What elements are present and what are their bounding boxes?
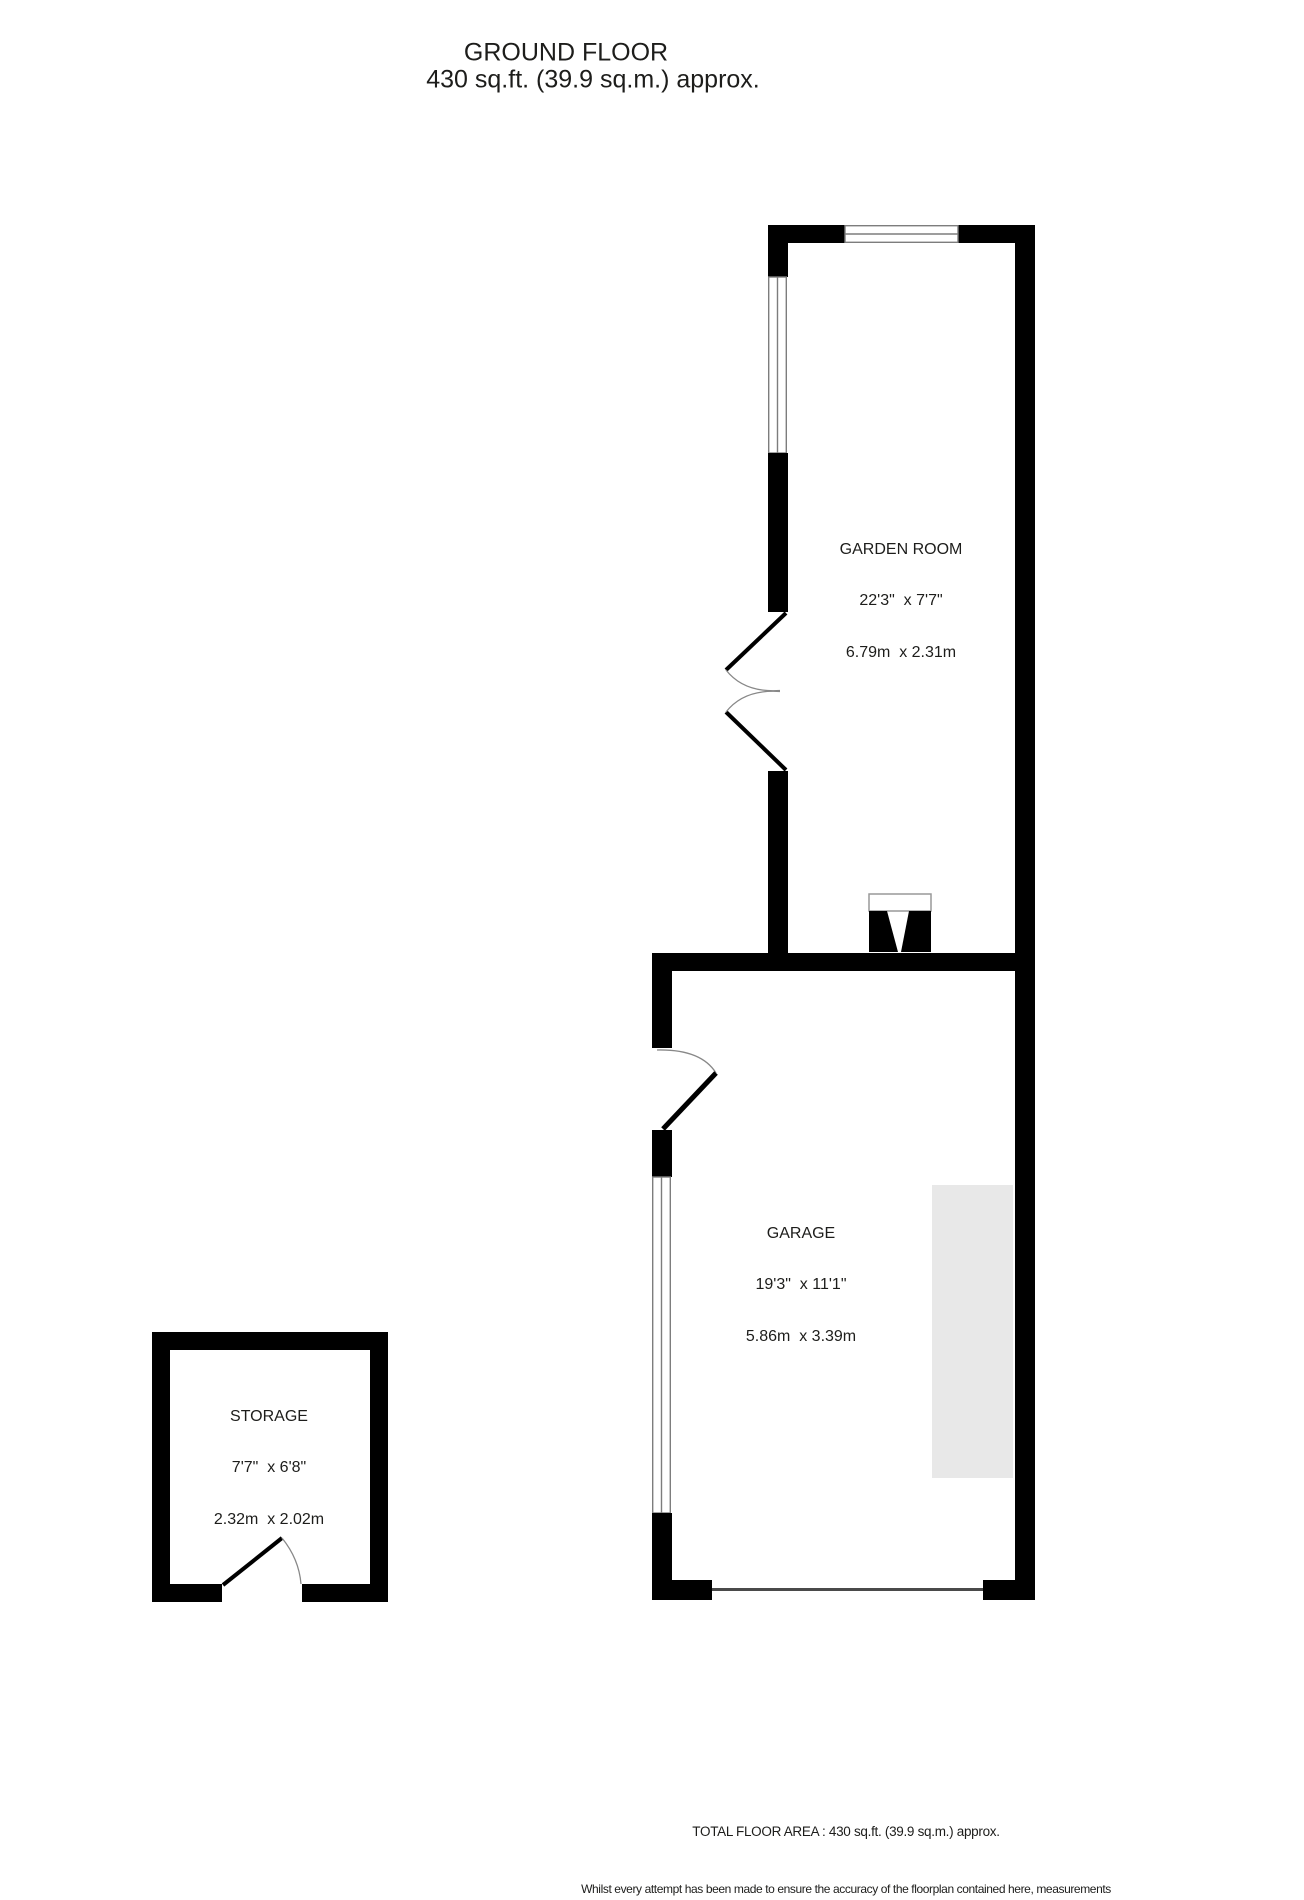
bifold-door-frame xyxy=(869,894,931,911)
garage-dims-imperial: 19'3" x 11'1" xyxy=(746,1276,856,1293)
storage-right-wall xyxy=(370,1332,388,1602)
garden-room-name: GARDEN ROOM xyxy=(840,540,963,557)
garage-side-door-leaf xyxy=(663,1073,716,1129)
garage-door-opening-line xyxy=(712,1588,983,1591)
storage-dims-imperial: 7'7" x 6'8" xyxy=(214,1459,324,1476)
floorplan-drawing xyxy=(0,0,1304,1900)
storage-left-wall xyxy=(152,1332,170,1602)
divider-wall xyxy=(652,953,1035,971)
disclaimer-line-1: Whilst every attempt has been made to en… xyxy=(578,1882,1114,1897)
footer: TOTAL FLOOR AREA : 430 sq.ft. (39.9 sq.m… xyxy=(578,1786,1114,1900)
garage-left-wall-middle xyxy=(652,1130,672,1177)
garage-dims-metric: 5.86m x 3.39m xyxy=(746,1328,856,1345)
storage-dims-metric: 2.32m x 2.02m xyxy=(214,1511,324,1528)
bifold-door-left-wedge xyxy=(869,911,898,952)
garden-room-left-wall-upper xyxy=(768,225,788,277)
patio-door-leaf-lower xyxy=(726,712,786,770)
right-wall xyxy=(1015,225,1035,1600)
patio-door-leaf-upper xyxy=(726,613,786,670)
garden-room-label: GARDEN ROOM 22'3" x 7'7" 6.79m x 2.31m xyxy=(840,506,963,696)
page-subtitle-area: 430 sq.ft. (39.9 sq.m.) approx. xyxy=(426,67,760,94)
floorplan-page: GROUND FLOOR 430 sq.ft. (39.9 sq.m.) app… xyxy=(0,0,1304,1900)
garden-room-dims-imperial: 22'3" x 7'7" xyxy=(840,592,963,609)
storage-bottom-wall-left-stub xyxy=(152,1584,222,1602)
storage-name: STORAGE xyxy=(214,1407,324,1424)
storage-label: STORAGE 7'7" x 6'8" 2.32m x 2.02m xyxy=(214,1373,324,1563)
bifold-door-right-wedge xyxy=(901,911,931,952)
garden-room-left-wall-middle xyxy=(768,453,788,612)
garage-left-wall-upper xyxy=(652,953,672,1048)
patio-door-arc-upper xyxy=(726,670,780,691)
garage-bottom-wall-right-stub xyxy=(983,1580,1035,1600)
garage-bottom-wall-left-stub xyxy=(652,1580,712,1600)
garage-label: GARAGE 19'3" x 11'1" 5.86m x 3.39m xyxy=(746,1190,856,1380)
garage-shaded-area xyxy=(932,1185,1013,1478)
total-floor-area: TOTAL FLOOR AREA : 430 sq.ft. (39.9 sq.m… xyxy=(578,1822,1114,1842)
garage-name: GARAGE xyxy=(746,1224,856,1241)
patio-door-arc-lower xyxy=(726,691,780,712)
garden-room-dims-metric: 6.79m x 2.31m xyxy=(840,644,963,661)
page-title: GROUND FLOOR xyxy=(464,40,668,67)
garden-room-left-wall-lower xyxy=(768,771,788,971)
storage-bottom-wall-right-stub xyxy=(302,1584,388,1602)
garage-side-door-arc xyxy=(657,1050,716,1073)
storage-top-wall xyxy=(152,1332,388,1350)
